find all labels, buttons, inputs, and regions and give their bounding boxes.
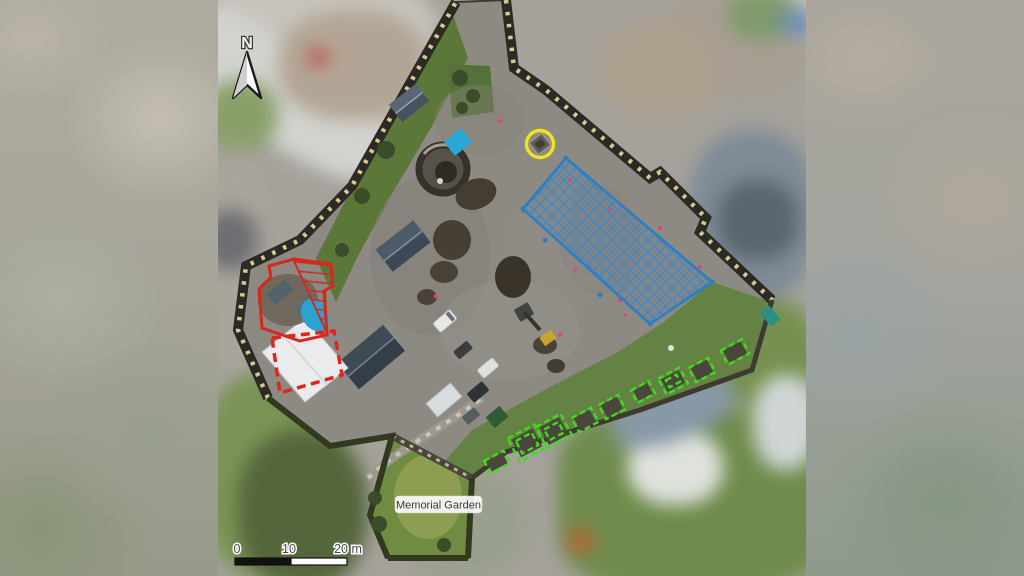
- north-arrow: N: [233, 35, 261, 98]
- scale-tick-0: 0: [234, 542, 241, 556]
- blurred-left-margin: [0, 0, 218, 576]
- scale-bar: 0 10 20 m: [234, 542, 362, 565]
- map-place-label: Memorial Garden: [395, 496, 482, 513]
- blurred-right-margin: [806, 0, 1024, 576]
- north-label: N: [241, 35, 253, 52]
- scale-tick-20m: 20 m: [334, 542, 362, 556]
- scale-tick-10: 10: [282, 542, 296, 556]
- circular-feature: [419, 145, 467, 193]
- annotation-highlight-circle: [527, 131, 554, 158]
- figure-canvas: N Memorial Garden 0 10 20 m: [0, 0, 1024, 576]
- site-map-svg: N Memorial Garden 0 10 20 m: [218, 0, 806, 576]
- place-label-text: Memorial Garden: [396, 500, 481, 512]
- orthophoto-panel: N Memorial Garden 0 10 20 m: [218, 0, 806, 576]
